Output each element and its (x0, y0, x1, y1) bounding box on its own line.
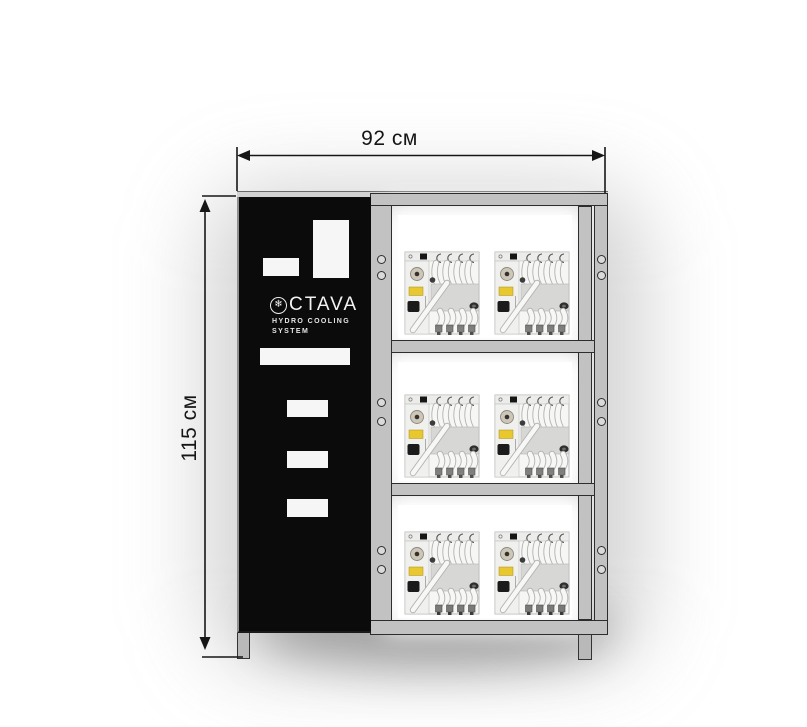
mounting-hole (377, 398, 386, 407)
snowflake-icon: ❄ (270, 297, 287, 314)
power-connector (498, 444, 510, 455)
vent-cutout (263, 258, 299, 276)
valve-knob (430, 277, 436, 283)
mounting-hole (597, 255, 606, 264)
valve-knob (520, 557, 526, 563)
cooling-unit-graphic (492, 246, 572, 336)
valve-knob (430, 420, 436, 426)
power-connector (408, 444, 420, 455)
cooling-unit-graphic (402, 246, 482, 336)
shelf-bay-3 (392, 496, 578, 620)
equipment-rack (370, 193, 608, 635)
top-connector (420, 534, 427, 540)
mounting-hole (597, 546, 606, 555)
valve-knob (520, 420, 526, 426)
mounting-hole (377, 565, 386, 574)
warning-label (499, 287, 513, 296)
mounting-hole (377, 271, 386, 280)
brand-logo: ❄ CTAVA (270, 294, 358, 316)
cabinet-leg (578, 635, 592, 660)
technical-drawing: 92 см 115 см ❄ CTAVA HYDRO COOLING SYSTE… (0, 0, 807, 727)
warning-label (409, 567, 423, 576)
height-dimension-label: 115 см (178, 376, 202, 480)
front-panel: ❄ CTAVA HYDRO COOLING SYSTEM (237, 197, 371, 633)
top-rail (370, 193, 608, 206)
arrowhead-right (592, 150, 605, 161)
mounting-hole (597, 271, 606, 280)
warning-label (499, 567, 513, 576)
arrowhead-bottom (200, 637, 211, 650)
top-connector (420, 254, 427, 260)
mounting-hole (597, 398, 606, 407)
valve-knob (520, 277, 526, 283)
shelf-bay-1 (392, 206, 578, 340)
mounting-hole (597, 565, 606, 574)
mounting-hole (597, 417, 606, 426)
top-connector (510, 254, 517, 260)
power-connector (498, 301, 510, 312)
cooling-unit (492, 526, 572, 616)
warning-label (409, 430, 423, 439)
arrowhead-top (200, 199, 211, 212)
vent-cutout (287, 400, 328, 417)
top-connector (420, 397, 427, 403)
panel-subtitle-line1: HYDRO COOLING (272, 318, 350, 325)
inner-frame-member (578, 206, 592, 620)
vent-cutout (287, 499, 328, 517)
display-cutout (260, 348, 350, 365)
power-connector (498, 581, 510, 592)
vent-cutout (287, 451, 328, 468)
cooling-unit (492, 389, 572, 479)
mounting-hole (377, 546, 386, 555)
cooling-unit-graphic (402, 526, 482, 616)
panel-subtitle-line2: SYSTEM (272, 328, 309, 335)
brand-name: CTAVA (289, 294, 358, 316)
top-connector (510, 534, 517, 540)
valve-knob (430, 557, 436, 563)
shelf-divider (370, 483, 608, 496)
bottom-rail (370, 620, 608, 635)
warning-label (499, 430, 513, 439)
power-connector (408, 301, 420, 312)
cooling-unit-graphic (492, 526, 572, 616)
shelf-divider (370, 340, 608, 353)
warning-label (409, 287, 423, 296)
arrowhead-left (237, 150, 250, 161)
shelf-bay-2 (392, 353, 578, 483)
power-connector (408, 581, 420, 592)
mounting-hole (377, 417, 386, 426)
cooling-unit (402, 246, 482, 336)
cooling-unit-graphic (402, 389, 482, 479)
cooling-unit-graphic (492, 389, 572, 479)
cooling-unit (492, 246, 572, 336)
cooling-unit (402, 526, 482, 616)
cooling-unit (402, 389, 482, 479)
width-dimension-label: 92 см (237, 127, 542, 151)
cabinet-leg (237, 633, 250, 659)
top-connector (510, 397, 517, 403)
mounting-hole (377, 255, 386, 264)
vent-cutout (313, 220, 349, 278)
